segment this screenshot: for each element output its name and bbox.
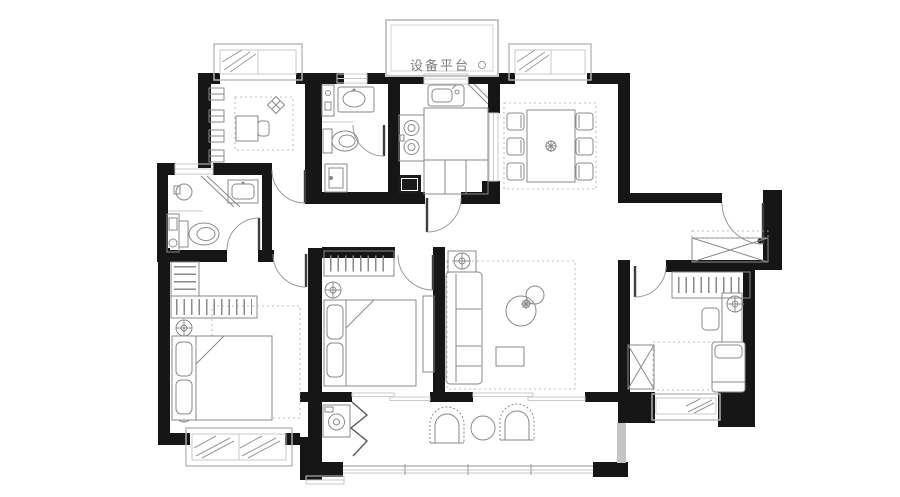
desk — [722, 293, 742, 343]
plant-icon — [506, 286, 544, 326]
balcony-slider-right — [473, 393, 585, 401]
bath-cabinet — [167, 214, 179, 252]
balcony-side-wall — [617, 423, 626, 463]
wc-cabinet — [322, 85, 334, 116]
kitchen-sink — [428, 85, 464, 106]
ac-vent-icon — [268, 97, 285, 114]
equipment-platform: 设备平台 — [386, 20, 498, 76]
middle-bed — [324, 300, 416, 386]
right-bedroom-window — [652, 394, 720, 420]
balcony-chair — [500, 404, 534, 440]
desk-chair — [258, 121, 269, 136]
single-bed — [712, 342, 745, 392]
balcony-folding-door — [351, 402, 367, 456]
study-door — [272, 170, 305, 203]
balcony-slider-left — [352, 393, 430, 401]
desk-lamp-icon — [727, 296, 743, 312]
wc-toilet — [323, 129, 358, 153]
master-bedroom — [171, 262, 300, 422]
living-rug — [447, 261, 575, 389]
master-bed — [172, 336, 272, 420]
centerpiece-icon — [545, 140, 557, 152]
dining-window — [509, 44, 591, 80]
balcony-chair — [430, 407, 464, 443]
living-room — [446, 251, 575, 389]
right-wardrobe — [672, 272, 750, 298]
wc-door — [322, 122, 384, 156]
master-bay-window — [186, 428, 292, 466]
nightstand-lamp-icon — [325, 282, 341, 298]
study-room — [209, 88, 293, 162]
desk-chair — [702, 308, 719, 330]
bed-rug — [653, 342, 717, 390]
balcony-glazing — [343, 464, 593, 475]
balcony — [323, 404, 534, 443]
master-wardrobe — [171, 262, 257, 318]
dining-room — [504, 103, 596, 189]
middle-bedroom — [324, 251, 434, 386]
shower-screen — [201, 176, 240, 207]
floor-plan-svg: 设备平台 — [0, 0, 900, 497]
bookshelf — [209, 88, 224, 162]
master-bathroom — [167, 176, 258, 252]
kitchen-island — [424, 108, 488, 194]
table-lamp-icon — [454, 253, 470, 269]
shoe-cabinet — [692, 231, 768, 262]
nightstand-lamp-icon — [176, 320, 192, 336]
sofa — [446, 272, 482, 384]
washing-machine — [323, 405, 350, 437]
kitchen-pass-window — [489, 113, 498, 181]
study-desk — [236, 116, 258, 141]
stove — [399, 115, 424, 161]
coffee-table — [496, 347, 524, 366]
master-bedroom-door — [273, 254, 306, 287]
right-bedroom — [628, 272, 750, 392]
wc-sink — [338, 87, 374, 112]
entry-hall — [692, 231, 768, 262]
kitchen — [398, 84, 488, 194]
balcony-table — [471, 416, 495, 440]
x-cabinet — [628, 345, 654, 389]
bathroom-door — [227, 218, 259, 250]
platform-label: 设备平台 — [410, 58, 470, 73]
middle-bedroom-door — [398, 255, 433, 290]
kitchen-door — [427, 198, 461, 232]
corner-counter — [468, 84, 488, 104]
study-window — [214, 44, 302, 80]
toilet — [179, 221, 219, 247]
fridge — [398, 175, 421, 194]
dresser — [423, 296, 434, 372]
floor-plan-page: 设备平台 — [0, 0, 900, 497]
right-bedroom-door — [635, 266, 666, 297]
laundry-cabinet — [325, 164, 347, 192]
guest-bathroom — [322, 85, 374, 192]
